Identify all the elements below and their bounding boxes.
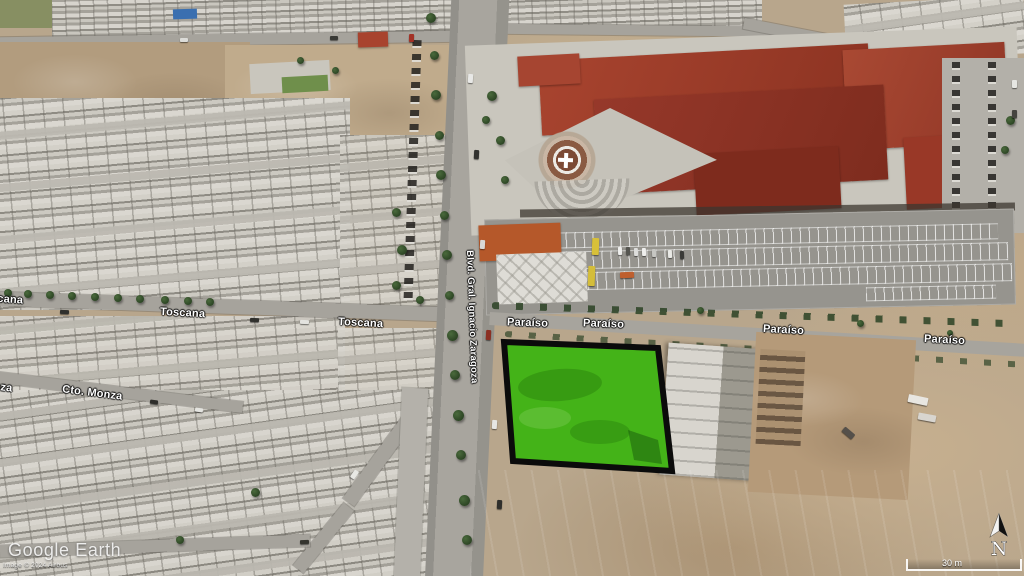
- street-label-paraiso-4: Paraíso: [924, 333, 966, 347]
- scale-bar-label: 30 m: [896, 559, 1008, 568]
- street-label-paraiso-2: Paraíso: [583, 317, 625, 330]
- street-label-toscana-edge: Toscana: [0, 291, 24, 306]
- google-earth-watermark: Google Earth: [8, 540, 121, 561]
- lot-texture-blob-2: [570, 420, 630, 444]
- scale-bar: 30 m: [906, 559, 1022, 571]
- imagery-attribution: Image © 2024 Airbus: [3, 562, 68, 569]
- north-arrow-icon[interactable]: N: [985, 510, 1015, 560]
- north-arrow-left-half: [990, 513, 999, 537]
- north-arrow-right-half: [999, 513, 1008, 537]
- north-label: N: [991, 538, 1008, 560]
- lot-texture-blob-3: [519, 407, 571, 429]
- overlay-svg: [0, 0, 1024, 576]
- map-viewport[interactable]: Toscana Toscana Toscana Cto. Monza Cto. …: [0, 0, 1024, 576]
- street-label-toscana-1: Toscana: [160, 306, 206, 320]
- street-label-paraiso-3: Paraíso: [763, 323, 805, 337]
- street-label-paraiso-1: Paraíso: [507, 316, 549, 329]
- street-label-toscana-2: Toscana: [338, 316, 384, 330]
